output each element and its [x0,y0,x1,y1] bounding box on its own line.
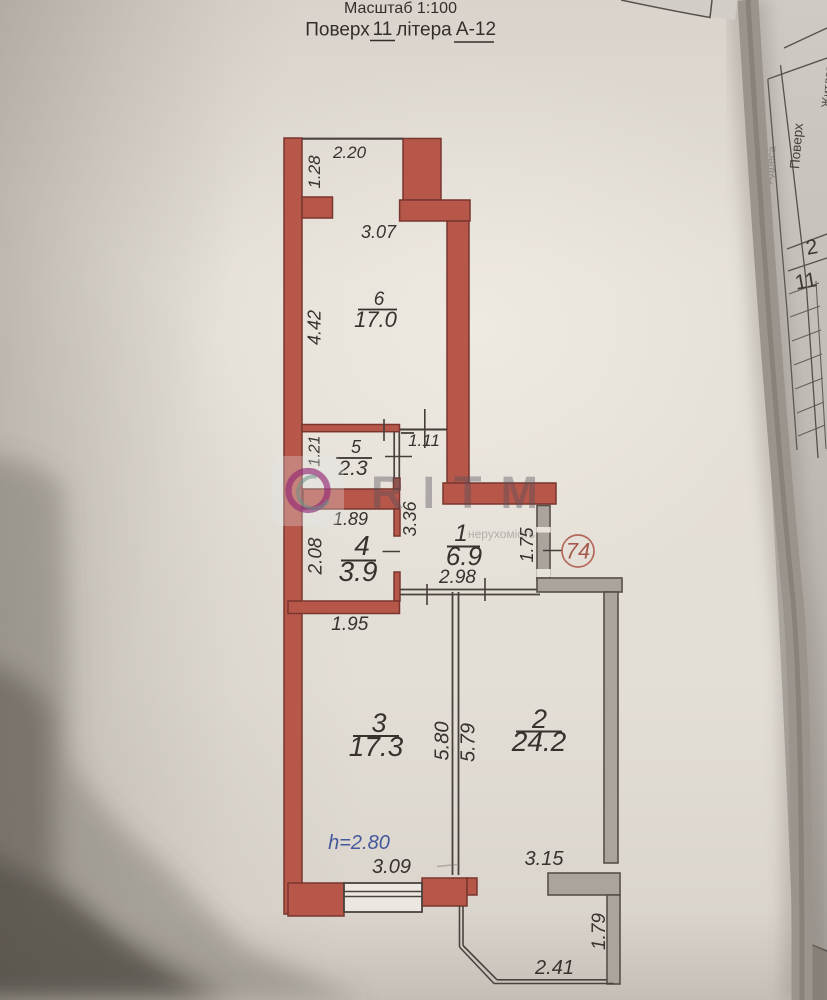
svg-text:Масштаб 1:100: Масштаб 1:100 [344,0,457,17]
svg-text:RITM: RITM [371,467,557,518]
svg-text:11: 11 [793,268,818,294]
svg-text:2.08: 2.08 [306,537,327,575]
svg-text:3.15: 3.15 [525,848,565,870]
svg-text:3.9: 3.9 [339,556,378,587]
svg-text:3.09: 3.09 [372,856,411,878]
svg-text:літера: літера [396,20,452,41]
svg-text:5: 5 [351,437,362,457]
svg-text:нерухомість: нерухомість [468,527,535,541]
svg-text:5.79: 5.79 [458,723,480,762]
svg-text:А-12: А-12 [456,19,496,40]
svg-text:3.07: 3.07 [361,222,397,242]
svg-text:1.28: 1.28 [305,155,324,189]
svg-text:6.9: 6.9 [446,541,482,571]
svg-text:17.3: 17.3 [349,731,404,762]
svg-text:5.80: 5.80 [432,722,454,761]
svg-text:Поверх: Поверх [305,20,370,41]
svg-text:2.20: 2.20 [332,143,367,162]
svg-text:1.11: 1.11 [408,431,440,450]
svg-text:11: 11 [373,19,393,40]
svg-text:24.2: 24.2 [511,726,567,757]
svg-text:74: 74 [566,539,590,564]
svg-text:1.95: 1.95 [331,614,368,635]
svg-text:1.79: 1.79 [589,913,610,950]
svg-text:17.0: 17.0 [354,307,398,332]
svg-text:2.41: 2.41 [534,957,574,979]
svg-text:h=2.80: h=2.80 [328,832,390,854]
svg-text:4.42: 4.42 [305,310,325,345]
